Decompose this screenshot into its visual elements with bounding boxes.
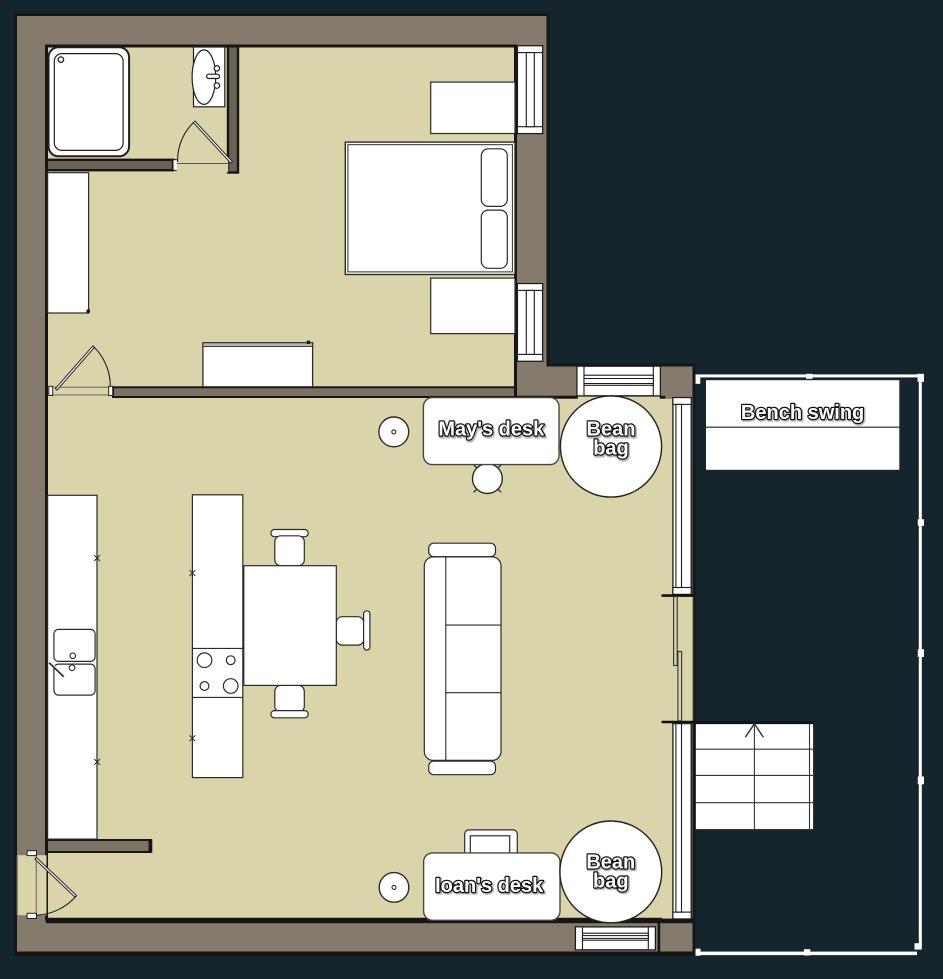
- svg-text:May's desk: May's desk: [438, 419, 545, 441]
- svg-text:Ioan's desk: Ioan's desk: [435, 875, 544, 897]
- svg-text:Bench swing: Bench swing: [741, 402, 864, 424]
- svg-text:bag: bag: [593, 870, 629, 892]
- svg-text:bag: bag: [593, 438, 629, 460]
